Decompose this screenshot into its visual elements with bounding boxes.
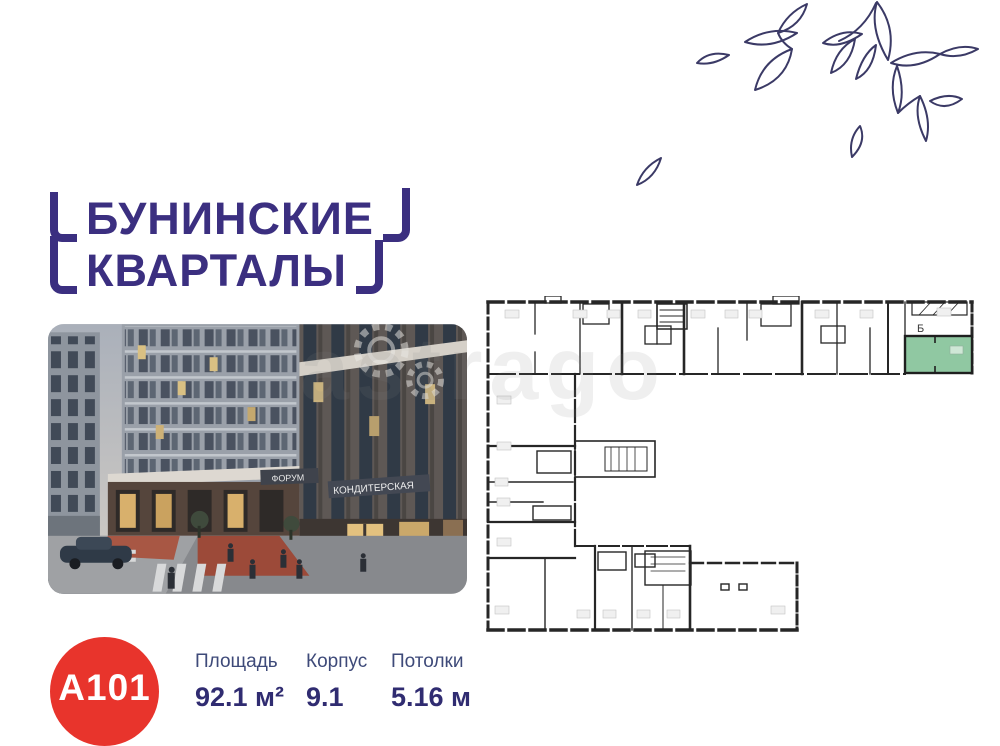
spec-area-label: Площадь xyxy=(195,651,284,673)
logo-line-2: КВАРТАЛЫ xyxy=(50,236,410,294)
section-marker: Б xyxy=(917,323,924,335)
corner-bracket-right-icon xyxy=(356,240,383,294)
floor-plan-walls xyxy=(488,296,972,630)
photo-mid-building xyxy=(122,324,300,492)
highlighted-unit xyxy=(905,336,972,373)
a101-logo-badge: A101 xyxy=(50,637,159,746)
spec-area-value: 92.1 м² xyxy=(195,682,284,713)
spec-building-value: 9.1 xyxy=(306,682,367,713)
building-photo: ФОРУМ КОНДИТЕРСКАЯ xyxy=(48,324,467,594)
sign-forum: ФОРУМ xyxy=(271,472,304,483)
logo-line-1: БУНИНСКИЕ xyxy=(50,188,410,242)
spec-building-label: Корпус xyxy=(306,651,367,673)
spec-ceiling: Потолки 5.16 м xyxy=(391,651,471,713)
brochure-page: { "page": { "background": "#ffffff", "wa… xyxy=(0,0,1000,720)
floor-plan: Б xyxy=(485,296,975,636)
corner-bracket-left-icon xyxy=(50,236,77,294)
room-label-boxes xyxy=(495,308,951,618)
spec-ceiling-label: Потолки xyxy=(391,651,471,673)
corner-bracket-left-icon xyxy=(50,192,77,242)
logo-text-line-2: КВАРТАЛЫ xyxy=(86,248,347,294)
project-logo: БУНИНСКИЕ КВАРТАЛЫ xyxy=(50,188,410,294)
leaves-decoration-icon xyxy=(628,0,1000,200)
spec-area: Площадь 92.1 м² xyxy=(195,651,284,713)
spec-building: Корпус 9.1 xyxy=(306,651,367,713)
corner-bracket-right-icon xyxy=(383,188,410,242)
logo-text-line-1: БУНИНСКИЕ xyxy=(86,196,374,242)
a101-logo-text: A101 xyxy=(58,667,150,709)
spec-ceiling-value: 5.16 м xyxy=(391,682,471,713)
